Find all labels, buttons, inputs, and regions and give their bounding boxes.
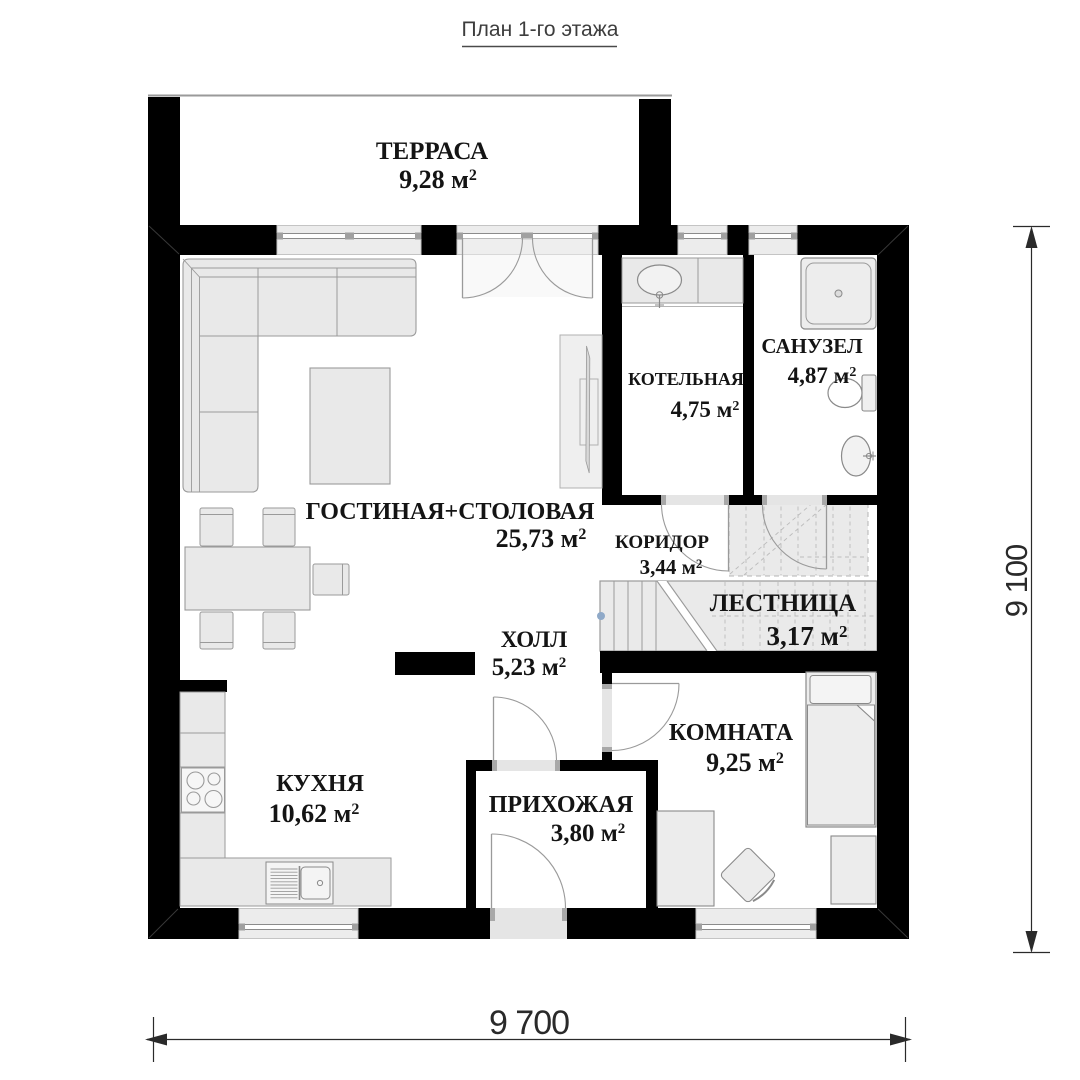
svg-text:КОТЕЛЬНАЯ: КОТЕЛЬНАЯ: [628, 369, 744, 389]
svg-text:4,75 м2: 4,75 м2: [671, 397, 740, 422]
svg-text:ХОЛЛ: ХОЛЛ: [501, 627, 567, 652]
svg-text:3,80 м2: 3,80 м2: [551, 820, 626, 847]
svg-text:10,62 м2: 10,62 м2: [269, 799, 360, 828]
svg-text:9 100: 9 100: [999, 544, 1034, 617]
svg-text:КУХНЯ: КУХНЯ: [276, 771, 364, 797]
svg-text:КОМНАТА: КОМНАТА: [669, 720, 794, 746]
svg-text:9,28 м2: 9,28 м2: [399, 165, 477, 194]
svg-text:ПРИХОЖАЯ: ПРИХОЖАЯ: [489, 792, 634, 818]
svg-text:КОРИДОР: КОРИДОР: [615, 532, 709, 553]
svg-text:САНУЗЕЛ: САНУЗЕЛ: [761, 334, 863, 358]
svg-text:5,23 м2: 5,23 м2: [492, 654, 567, 681]
svg-text:ЛЕСТНИЦА: ЛЕСТНИЦА: [710, 590, 856, 617]
svg-text:25,73 м2: 25,73 м2: [496, 524, 587, 553]
svg-text:3,44 м2: 3,44 м2: [640, 555, 703, 579]
svg-text:ТЕРРАСА: ТЕРРАСА: [376, 138, 488, 165]
svg-text:План 1-го этажа: План 1-го этажа: [462, 18, 619, 41]
svg-text:3,17 м2: 3,17 м2: [767, 621, 848, 651]
svg-text:4,87 м2: 4,87 м2: [788, 363, 857, 388]
svg-text:9,25 м2: 9,25 м2: [706, 748, 784, 777]
svg-text:ГОСТИНАЯ+СТОЛОВАЯ: ГОСТИНАЯ+СТОЛОВАЯ: [306, 499, 595, 525]
svg-text:9 700: 9 700: [489, 1004, 569, 1042]
